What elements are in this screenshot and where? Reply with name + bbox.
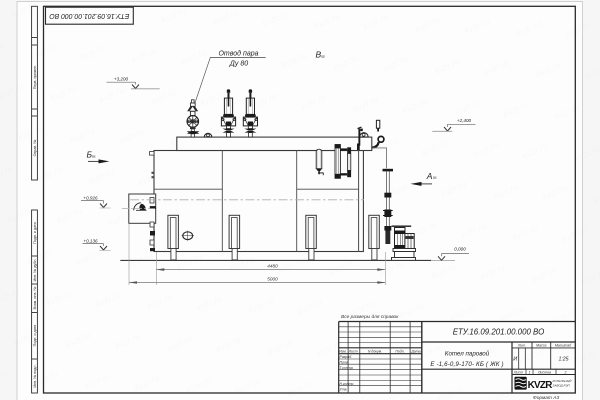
- svg-text:КОТЕЛЬНЫЙ: КОТЕЛЬНЫЙ: [553, 379, 573, 383]
- svg-text:KVZR: KVZR: [528, 380, 553, 391]
- svg-text:И: И: [513, 357, 517, 363]
- svg-text:Подп. и дата: Подп. и дата: [33, 221, 37, 244]
- svg-text:Масса: Масса: [536, 344, 546, 348]
- svg-text:Е -1,6-0,9-170- КБ ( ЖК ): Е -1,6-0,9-170- КБ ( ЖК ): [430, 361, 503, 368]
- svg-text:Подп. и дата: Подп. и дата: [33, 324, 37, 347]
- svg-text:Лит.: Лит.: [517, 344, 526, 348]
- svg-text:Взам. инв. №: Взам. инв. №: [33, 287, 37, 310]
- svg-text:Ду 80: Ду 80: [229, 60, 248, 67]
- svg-text:Дата: Дата: [410, 349, 420, 353]
- svg-text:+3,200: +3,200: [114, 77, 129, 82]
- svg-text:Б: Б: [87, 150, 93, 160]
- svg-text:Изм.: Изм.: [339, 349, 346, 353]
- svg-text:Перв. примен.: Перв. примен.: [33, 65, 37, 90]
- svg-text:1: 1: [529, 370, 531, 374]
- svg-text:ЕТУ.16.09.201.00.000 ВО: ЕТУ.16.09.201.00.000 ВО: [49, 12, 130, 19]
- svg-text:А: А: [426, 171, 433, 181]
- svg-text:4480: 4480: [267, 263, 278, 268]
- svg-text:Разраб.: Разраб.: [340, 355, 353, 359]
- svg-text:Все размеры для справок: Все размеры для справок: [341, 314, 399, 320]
- svg-text:Формат А3: Формат А3: [533, 395, 560, 400]
- svg-text:Н.контр.: Н.контр.: [340, 382, 355, 386]
- svg-text:+0,136: +0,136: [83, 239, 98, 244]
- svg-text:2: 2: [564, 370, 567, 374]
- svg-text:+0,926: +0,926: [83, 196, 98, 201]
- svg-text:Листов: Листов: [537, 370, 551, 374]
- svg-text:ЕТУ.16.09.201.00.000 ВО: ЕТУ.16.09.201.00.000 ВО: [453, 327, 545, 336]
- svg-text:Подп.: Подп.: [395, 349, 404, 353]
- svg-text:Утв.: Утв.: [340, 387, 348, 391]
- svg-text:Лист: Лист: [513, 370, 523, 374]
- svg-text:5000: 5000: [267, 276, 278, 281]
- svg-text:Инв. № дубл.: Инв. № дубл.: [33, 259, 37, 282]
- svg-text:В: В: [316, 50, 322, 60]
- svg-text:Справ. №: Справ. №: [33, 140, 37, 157]
- svg-text:Масштаб: Масштаб: [555, 344, 572, 348]
- svg-text:1:25: 1:25: [558, 357, 568, 363]
- svg-text:N докум.: N докум.: [368, 349, 382, 353]
- svg-text:+2,400: +2,400: [457, 118, 472, 123]
- svg-text:Т.контр.: Т.контр.: [340, 366, 354, 370]
- svg-text:0,000: 0,000: [454, 247, 466, 252]
- svg-text:Отвод пара: Отвод пара: [218, 50, 258, 58]
- svg-text:Инв. № подл.: Инв. № подл.: [33, 365, 37, 388]
- svg-text:Лист: Лист: [348, 349, 358, 353]
- svg-text:ЗАВОД РЭП: ЗАВОД РЭП: [553, 384, 571, 388]
- svg-text:Пров.: Пров.: [340, 361, 349, 365]
- svg-text:Котел паровой: Котел паровой: [445, 351, 490, 358]
